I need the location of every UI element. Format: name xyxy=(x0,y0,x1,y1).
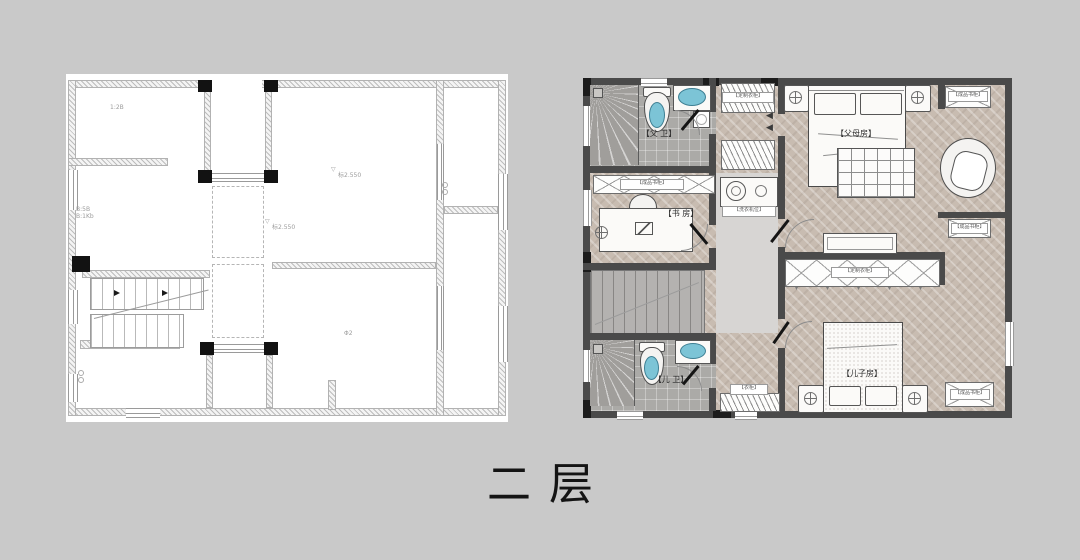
wall-balcony-divider xyxy=(444,206,498,214)
wall-left xyxy=(68,80,76,416)
column xyxy=(198,170,212,183)
wall-son-left xyxy=(778,259,785,319)
headboard-line xyxy=(808,90,904,91)
column xyxy=(264,170,278,183)
wall-bath1-bottom xyxy=(583,166,716,173)
double-door-icon: ◀ xyxy=(766,112,773,121)
wall-stub xyxy=(938,85,945,109)
void-outline xyxy=(212,264,264,338)
hanger-tick-icon: ▾ xyxy=(826,286,829,292)
window xyxy=(1005,322,1014,366)
laundry-label: 【洗衣机位】 xyxy=(722,206,776,217)
elevation-mark-icon: ▽ xyxy=(265,218,270,225)
window xyxy=(68,170,78,210)
washing-machine-drum xyxy=(731,186,741,196)
glass-partition xyxy=(437,286,444,350)
wall-divider xyxy=(68,158,168,166)
hinge-mark xyxy=(78,370,84,376)
wardrobe-top-2 xyxy=(721,140,775,170)
annotation: 1:2B xyxy=(110,104,124,111)
wall-study-bottom xyxy=(583,263,716,270)
wall-stub xyxy=(938,212,1012,218)
sink xyxy=(680,343,706,359)
shower-head-icon xyxy=(593,88,603,98)
shaft-wall-left xyxy=(204,88,211,176)
beam xyxy=(214,344,264,353)
wall-right-outer xyxy=(498,80,506,416)
shaft-wall-right-low xyxy=(266,355,273,408)
wall-room-divider xyxy=(272,262,436,269)
room-label-son: 【儿子房】 xyxy=(830,368,894,379)
beam xyxy=(212,173,264,182)
window xyxy=(126,408,160,418)
shower-head-icon xyxy=(593,344,603,354)
column-large xyxy=(72,256,90,272)
column xyxy=(264,342,278,355)
wall-wardrobe-right xyxy=(778,136,785,173)
wall-stair-top xyxy=(82,270,210,278)
cabinet-label: 【成品书柜】 xyxy=(620,179,684,190)
room-label-study: 【书 房】 xyxy=(649,208,713,219)
plant-icon xyxy=(804,392,817,405)
wall-right xyxy=(436,80,444,416)
shaft-wall-left-low xyxy=(206,355,213,408)
room-label-master: 【父母房】 xyxy=(824,128,888,139)
hall-cabinet xyxy=(720,393,780,412)
washer-drum-icon xyxy=(696,114,707,125)
wardrobe-row-label: 【定制衣柜】 xyxy=(831,267,889,278)
plant-icon xyxy=(595,226,608,239)
window xyxy=(68,290,78,324)
window xyxy=(68,374,78,402)
column xyxy=(264,80,278,92)
hall-cabinet-label: 【衣柜】 xyxy=(730,384,768,395)
cabinet-label: 【成品书柜】 xyxy=(950,389,990,400)
window xyxy=(735,411,757,420)
dryer-icon xyxy=(755,185,767,197)
structural-floor-plan: 1:2B B:5B B:1Kb ▽ 标2.550 ▽ 标2.550 Φ2 xyxy=(66,74,508,422)
window xyxy=(641,78,667,87)
hanger-tick-icon: ▾ xyxy=(857,286,860,292)
pillow xyxy=(814,93,856,115)
plant-icon xyxy=(911,91,924,104)
elevation-annotation: 标2.550 xyxy=(338,172,361,179)
double-door-icon: ◀ xyxy=(766,124,773,133)
elevation-annotation: 标2.550 xyxy=(272,224,295,231)
stair-direction-arrow xyxy=(162,290,168,296)
annotation: Φ2 xyxy=(344,330,353,337)
wardrobe-label: 【定制衣柜】 xyxy=(722,92,774,103)
annotation: B:5B xyxy=(76,206,90,213)
cabinet-label: 【成品书柜】 xyxy=(948,91,988,102)
wall-bath2-top xyxy=(583,333,716,340)
cabinet-label: 【成品书柜】 xyxy=(951,223,988,234)
wall-right xyxy=(1005,78,1012,418)
dresser-inner xyxy=(827,237,893,250)
stair-direction-arrow xyxy=(114,290,120,296)
hanger-tick-icon: ▾ xyxy=(795,286,798,292)
window xyxy=(583,190,592,226)
vestibule-gap xyxy=(212,80,262,88)
pillow xyxy=(860,93,902,115)
bed-bench xyxy=(837,148,915,198)
toilet-bowl xyxy=(649,102,665,128)
hanger-tick-icon: ▾ xyxy=(919,286,922,292)
pillow xyxy=(865,386,897,406)
hinge-mark xyxy=(442,189,448,195)
pillow xyxy=(829,386,861,406)
void-outline xyxy=(212,186,264,258)
wall-stub xyxy=(328,380,336,410)
window xyxy=(498,174,508,230)
wall-bath1-right xyxy=(709,134,716,173)
hanger-tick-icon: ▾ xyxy=(888,286,891,292)
wall-corridor-right xyxy=(778,173,785,219)
floor-title: 二层 xyxy=(0,448,1080,512)
window xyxy=(617,411,643,420)
column xyxy=(200,342,214,355)
stair-lower-flight xyxy=(90,314,184,348)
annotation: B:1Kb xyxy=(76,213,94,220)
elevation-mark-icon: ▽ xyxy=(331,166,336,173)
window xyxy=(498,306,508,362)
plant-icon xyxy=(789,91,802,104)
column xyxy=(198,80,212,92)
monitor-icon xyxy=(635,222,653,235)
furnished-floor-plan: 【父 卫】 【成品书柜】 【书 房】 【定制衣柜】 ◀ ◀ 【洗衣机位】 【父母… xyxy=(583,78,1012,418)
sink xyxy=(678,88,706,106)
hinge-mark xyxy=(78,377,84,383)
shaft-wall-right xyxy=(265,88,272,176)
hinge-mark xyxy=(442,182,448,188)
plant-icon xyxy=(908,392,921,405)
wall-bath2-right xyxy=(709,388,716,411)
